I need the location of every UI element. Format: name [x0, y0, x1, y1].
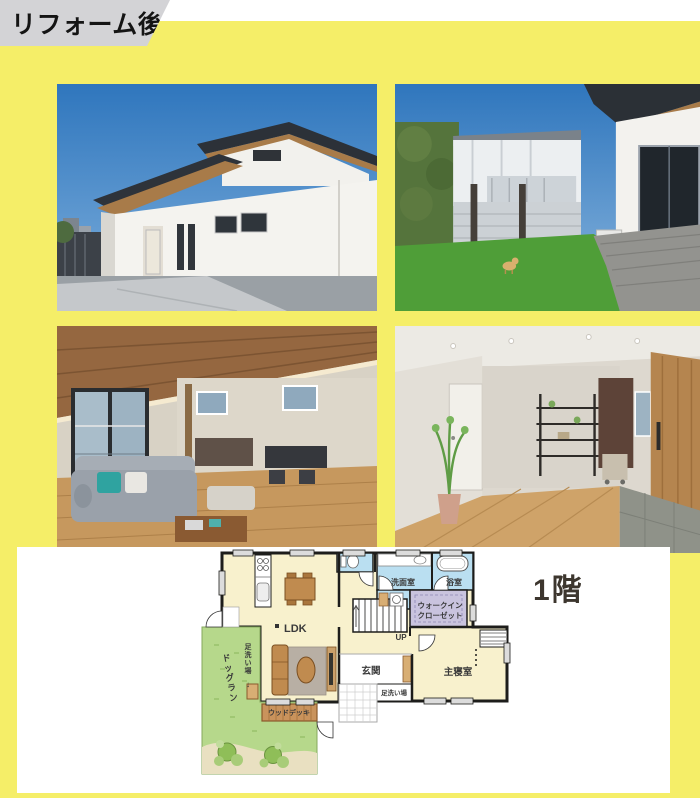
photo-ldk-interior [57, 326, 377, 553]
lawn [395, 234, 620, 311]
ottoman [207, 486, 255, 510]
label-footwash-arrow: ↓ [246, 680, 250, 689]
entrance-porch [339, 684, 377, 722]
label-master-bedroom: 主寝室 [444, 666, 473, 678]
window-small-1 [197, 392, 227, 414]
coffee-table [175, 516, 247, 542]
terrace-opening [223, 607, 239, 627]
sofa [71, 456, 197, 522]
toilet-fixture [341, 555, 359, 568]
bathtub [437, 556, 468, 571]
photo-backyard-dog-run [395, 84, 700, 311]
front-door [651, 352, 700, 514]
window-small-2 [283, 386, 317, 410]
label-wic-1: ウォークイン [418, 600, 463, 610]
label-footwash-bottom: 足洗い場 [381, 688, 408, 697]
label-wood-deck: ウッドデッキ [268, 708, 310, 717]
front-gate-arc [317, 722, 333, 738]
slop-sink [390, 593, 403, 606]
door-knob [451, 436, 455, 440]
floor-plan: LDK 洗面室 浴室 ウォークイン クローゼット UP 玄関 主寝室 足洗い場 … [200, 549, 512, 789]
after-reform-badge: リフォーム後 [0, 0, 170, 46]
label-washroom: 洗面室 [391, 577, 415, 587]
photo-backyard-scene [395, 84, 700, 311]
ldk-bullet [275, 624, 279, 628]
sofa-set [272, 645, 336, 695]
dining-set [285, 573, 315, 605]
kitchen [255, 555, 271, 607]
laundry-cabinet [379, 593, 388, 606]
trees-hedge [395, 122, 459, 250]
window-slim [635, 392, 651, 436]
label-up: UP [395, 633, 407, 642]
kitchen-counter [195, 438, 253, 466]
terrace-door-arc [206, 611, 222, 627]
photo-ldk-scene [57, 326, 377, 553]
label-bathroom: 浴室 [446, 577, 462, 587]
entrance-bench [403, 656, 411, 682]
cart [602, 454, 627, 485]
label-wic-2: クローゼット [418, 610, 463, 620]
photo-exterior-front-scene [57, 84, 377, 311]
label-entrance: 玄関 [361, 665, 380, 677]
photo-entrance-scene [395, 326, 700, 553]
photo-entrance-hall [395, 326, 700, 553]
photo-exterior-front [57, 84, 377, 311]
floor-number-label: 1階 [533, 565, 584, 609]
floorplan-panel: 1階 [17, 547, 670, 793]
after-reform-badge-label: リフォーム後 [11, 5, 163, 41]
flyer-canvas: リフォーム後 [0, 0, 700, 798]
label-ldk: LDK [284, 623, 307, 635]
